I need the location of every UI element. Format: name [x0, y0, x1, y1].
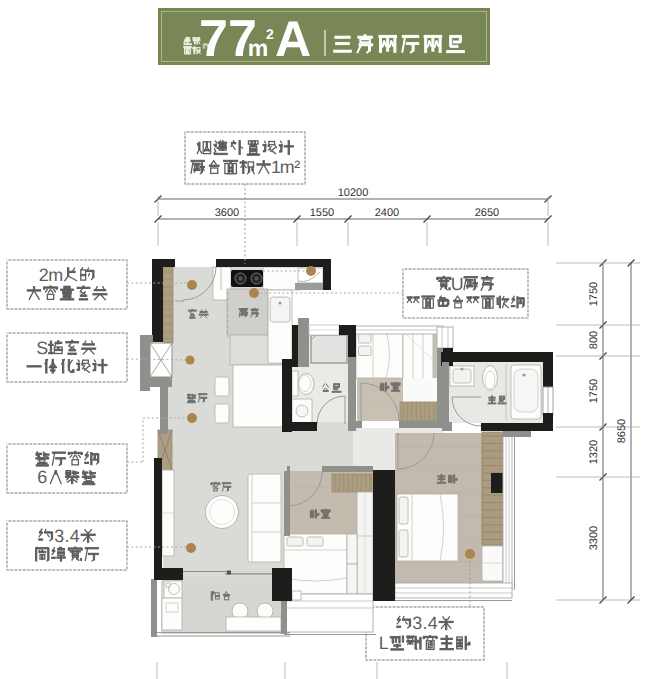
svg-text:3: 3 [412, 613, 422, 633]
svg-text:1750: 1750 [588, 379, 600, 403]
svg-text:m: m [48, 265, 63, 285]
svg-text:2400: 2400 [375, 207, 399, 219]
svg-text:1750: 1750 [588, 282, 600, 306]
svg-text:4: 4 [428, 613, 438, 633]
svg-text:1320: 1320 [588, 440, 600, 464]
svg-text:10200: 10200 [338, 187, 369, 199]
svg-text:S: S [36, 338, 48, 358]
svg-text:A: A [275, 11, 311, 67]
svg-text:m: m [280, 157, 295, 177]
svg-text:²: ² [294, 157, 300, 177]
svg-text:6: 6 [37, 467, 47, 487]
svg-text:800: 800 [588, 331, 600, 349]
svg-text:8650: 8650 [616, 419, 628, 443]
svg-text:L: L [379, 633, 389, 653]
svg-text:2650: 2650 [475, 207, 499, 219]
svg-text:4: 4 [70, 526, 80, 546]
svg-text:3: 3 [54, 526, 64, 546]
svg-text:2: 2 [39, 265, 49, 285]
svg-text:3600: 3600 [215, 207, 239, 219]
svg-text:3300: 3300 [588, 526, 600, 550]
svg-text:1550: 1550 [310, 207, 334, 219]
svg-text:U: U [451, 274, 464, 294]
svg-text:2: 2 [266, 26, 274, 42]
